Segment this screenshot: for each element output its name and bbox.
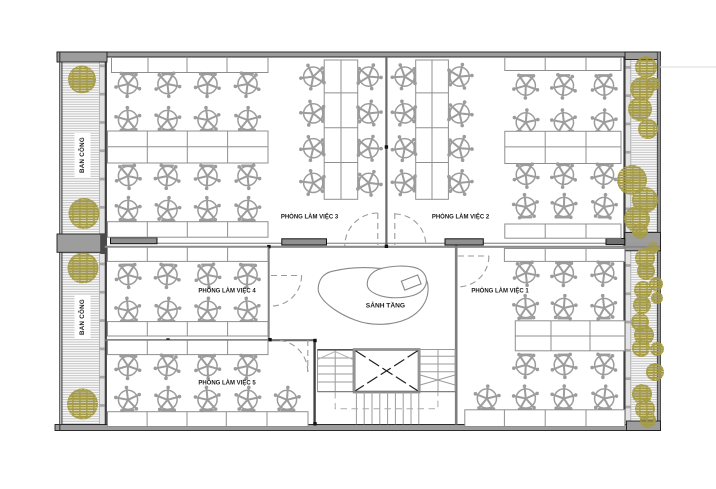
svg-text:PHÒNG LÀM VIỆC 1: PHÒNG LÀM VIỆC 1 xyxy=(471,287,529,295)
svg-text:BAN CÔNG: BAN CÔNG xyxy=(78,299,86,335)
svg-text:PHÒNG LÀM VIỆC 4: PHÒNG LÀM VIỆC 4 xyxy=(198,286,256,294)
svg-text:PHÒNG LÀM VIỆC 5: PHÒNG LÀM VIỆC 5 xyxy=(198,378,256,386)
svg-text:PHÒNG LÀM VIỆC 2: PHÒNG LÀM VIỆC 2 xyxy=(432,213,490,221)
svg-text:PHÒNG LÀM VIỆC 3: PHÒNG LÀM VIỆC 3 xyxy=(281,213,339,221)
svg-text:BAN CÔNG: BAN CÔNG xyxy=(78,137,86,173)
